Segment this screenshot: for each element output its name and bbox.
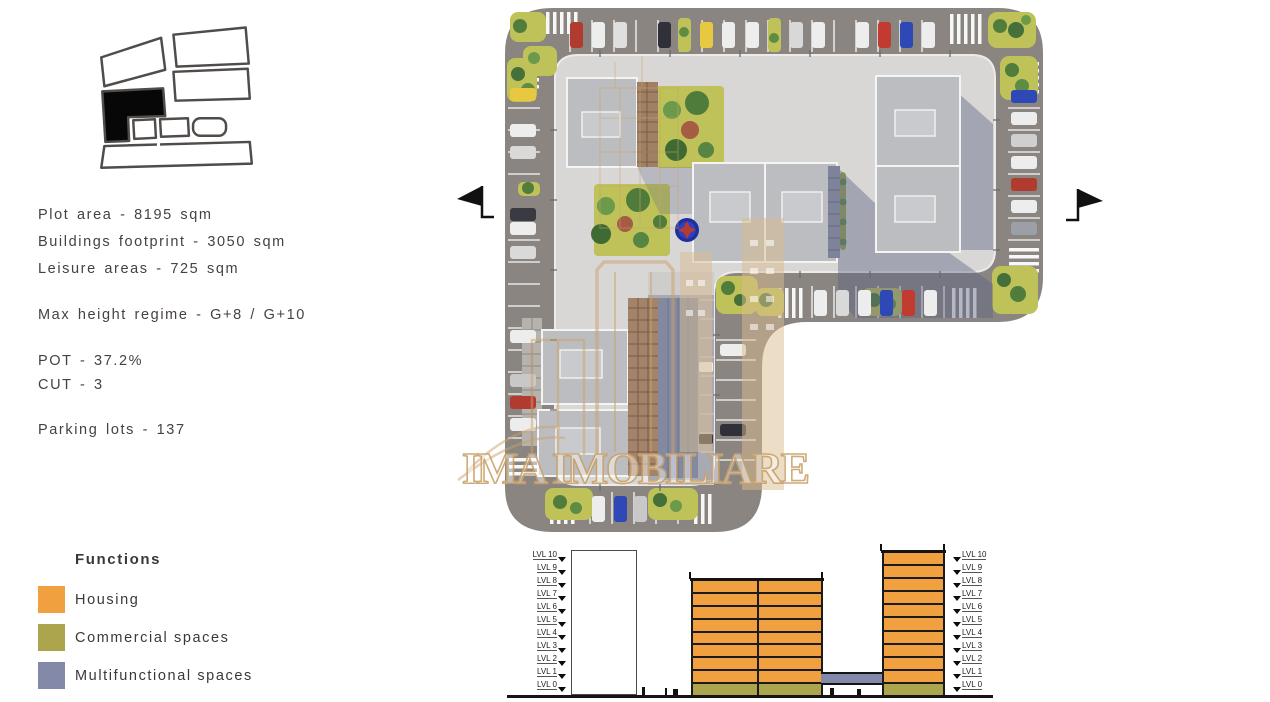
section-flag-right [1066,189,1103,220]
column-tick [943,544,945,551]
stat-leisure-areas: Leisure areas - 725 sqm [38,261,239,277]
location-diagram [95,12,255,177]
level-marker-icon [953,674,961,679]
level-row: LVL 5 [952,615,1014,627]
level-row: LVL 6 [952,602,1014,614]
stat-max-height: Max height regime - G+8 / G+10 [38,307,306,323]
section-flag-left [457,186,494,217]
facade-shaded [828,166,840,258]
level-marker-icon [953,609,961,614]
presentation-page: Plot area - 8195 sqm Buildings footprint… [0,0,1270,702]
parcel-gap [157,141,160,163]
level-marker-icon [953,622,961,627]
level-row: LVL 5 [505,615,567,627]
level-row: LVL 1 [505,667,567,679]
level-row: LVL 10 [505,550,567,562]
level-marker-icon [953,570,961,575]
level-marker-icon [558,635,566,640]
level-marker-icon [558,583,566,588]
level-marker-icon [953,557,961,562]
site-plan-render: IMA IMOBILIARE [440,0,1110,545]
level-marker-icon [558,674,566,679]
elevation-existing-building [571,550,637,695]
multifunctional-swatch [38,662,65,689]
level-marker-icon [558,648,566,653]
elevation-right-tower [882,550,945,695]
stat-pot: POT - 37.2% [38,353,143,369]
building-top-left [567,78,658,167]
watermark-text: IMA IMOBILIARE [462,444,812,493]
stat-plot-area: Plot area - 8195 sqm [38,207,213,223]
level-row: LVL 1 [952,667,1014,679]
level-row: LVL 0 [952,680,1014,692]
ground-line [507,695,993,698]
level-marker-icon [953,661,961,666]
scale-figure [830,688,834,695]
level-row: LVL 7 [952,589,1014,601]
level-marker-icon [558,687,566,692]
level-row: LVL 3 [505,641,567,653]
level-row: LVL 2 [952,654,1014,666]
level-marker-icon [953,596,961,601]
level-row: LVL 4 [505,628,567,640]
level-row: LVL 3 [952,641,1014,653]
level-row: LVL 8 [505,576,567,588]
level-row: LVL 9 [505,563,567,575]
stat-buildings-footprint: Buildings footprint - 3050 sqm [38,234,286,250]
level-marker-icon [558,609,566,614]
stat-parking-lots: Parking lots - 137 [38,422,186,438]
level-marker-icon [558,557,566,562]
level-row: LVL 4 [952,628,1014,640]
elevation-mid-building [691,578,823,695]
level-row: LVL 7 [505,589,567,601]
building-top-right [876,76,960,166]
level-row: LVL 10 [952,550,1014,562]
parcel-outlines [101,27,252,167]
multifunctional-bridge [821,672,884,685]
stat-cut: CUT - 3 [38,377,104,393]
level-row: LVL 2 [505,654,567,666]
column-tick [821,572,823,579]
level-row: LVL 9 [952,563,1014,575]
level-marker-icon [953,687,961,692]
column-tick [880,544,882,551]
level-marker-icon [558,661,566,666]
level-marker-icon [953,648,961,653]
column-tick [689,572,691,579]
level-marker-icon [558,570,566,575]
scale-figure [642,687,645,695]
level-marker-icon [953,583,961,588]
scale-figure [665,688,667,695]
level-marker-icon [558,622,566,627]
level-marker-icon [558,596,566,601]
elevation-diagram: LVL 10 LVL 9 LVL 8 LVL 7 LVL 6 LVL 5 LVL… [505,544,1005,702]
commercial-swatch [38,624,65,651]
level-marker-icon [953,635,961,640]
level-row: LVL 6 [505,602,567,614]
building-divider [757,581,759,695]
legend-title: Functions [75,551,161,568]
housing-swatch [38,586,65,613]
building-right-center [876,166,960,252]
level-row: LVL 0 [505,680,567,692]
level-row: LVL 8 [952,576,1014,588]
commercial-ground-floor [884,684,943,695]
